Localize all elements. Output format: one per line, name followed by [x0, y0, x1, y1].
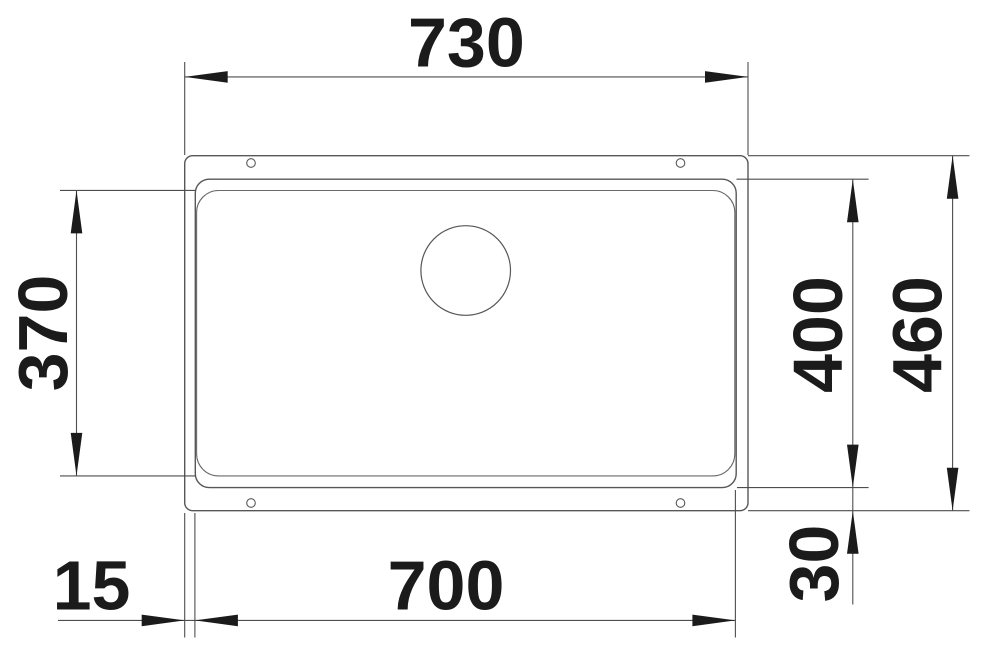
svg-text:370: 370 [4, 275, 82, 392]
svg-text:730: 730 [408, 3, 525, 81]
svg-text:400: 400 [779, 276, 857, 393]
svg-text:460: 460 [879, 276, 957, 393]
svg-text:700: 700 [388, 547, 505, 625]
svg-text:15: 15 [53, 547, 131, 625]
svg-text:30: 30 [775, 525, 853, 603]
